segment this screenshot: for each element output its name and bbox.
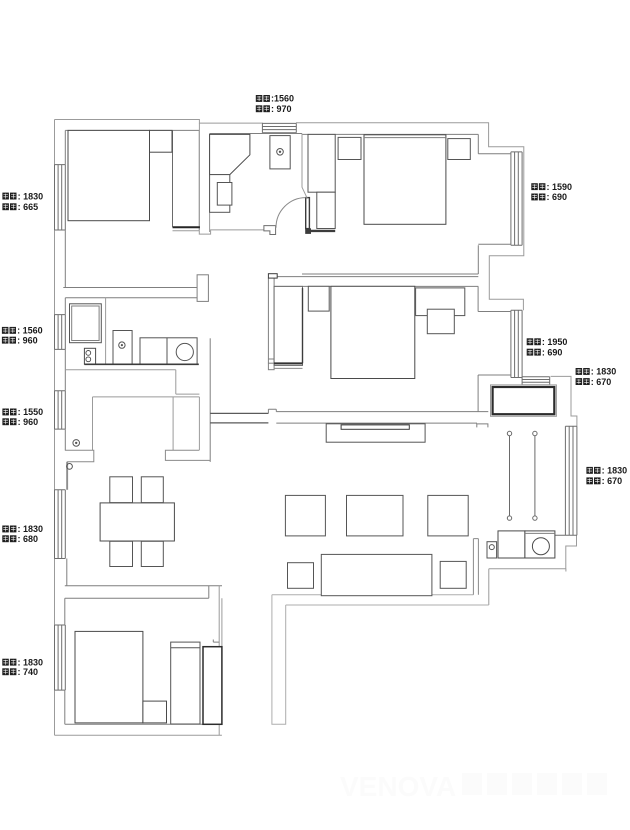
svg-text:: 960: : 960 xyxy=(18,417,39,427)
svg-text:: 1590: : 1590 xyxy=(547,182,573,192)
svg-text:: 1830: : 1830 xyxy=(591,367,617,377)
svg-text:: 1830: : 1830 xyxy=(18,191,44,201)
svg-text:: 1560: : 1560 xyxy=(17,326,43,336)
svg-text:: 1830: : 1830 xyxy=(18,657,44,667)
svg-text:: 1830: : 1830 xyxy=(18,524,44,534)
svg-text:: 680: : 680 xyxy=(18,534,39,544)
svg-text:: 970: : 970 xyxy=(271,104,292,114)
svg-text:: 1830: : 1830 xyxy=(602,466,628,476)
svg-text::1560: :1560 xyxy=(271,94,294,104)
svg-text:VENOVA: VENOVA xyxy=(340,771,456,802)
svg-text:: 1550: : 1550 xyxy=(18,407,44,417)
svg-text:: 690: : 690 xyxy=(547,192,568,202)
svg-text:: 960: : 960 xyxy=(17,335,38,345)
svg-text:: 690: : 690 xyxy=(542,347,563,357)
svg-text:: 670: : 670 xyxy=(602,476,623,486)
svg-text:: 670: : 670 xyxy=(591,377,612,387)
svg-text:: 740: : 740 xyxy=(18,667,39,677)
svg-text:: 1950: : 1950 xyxy=(542,337,568,347)
svg-text:: 665: : 665 xyxy=(18,202,39,212)
